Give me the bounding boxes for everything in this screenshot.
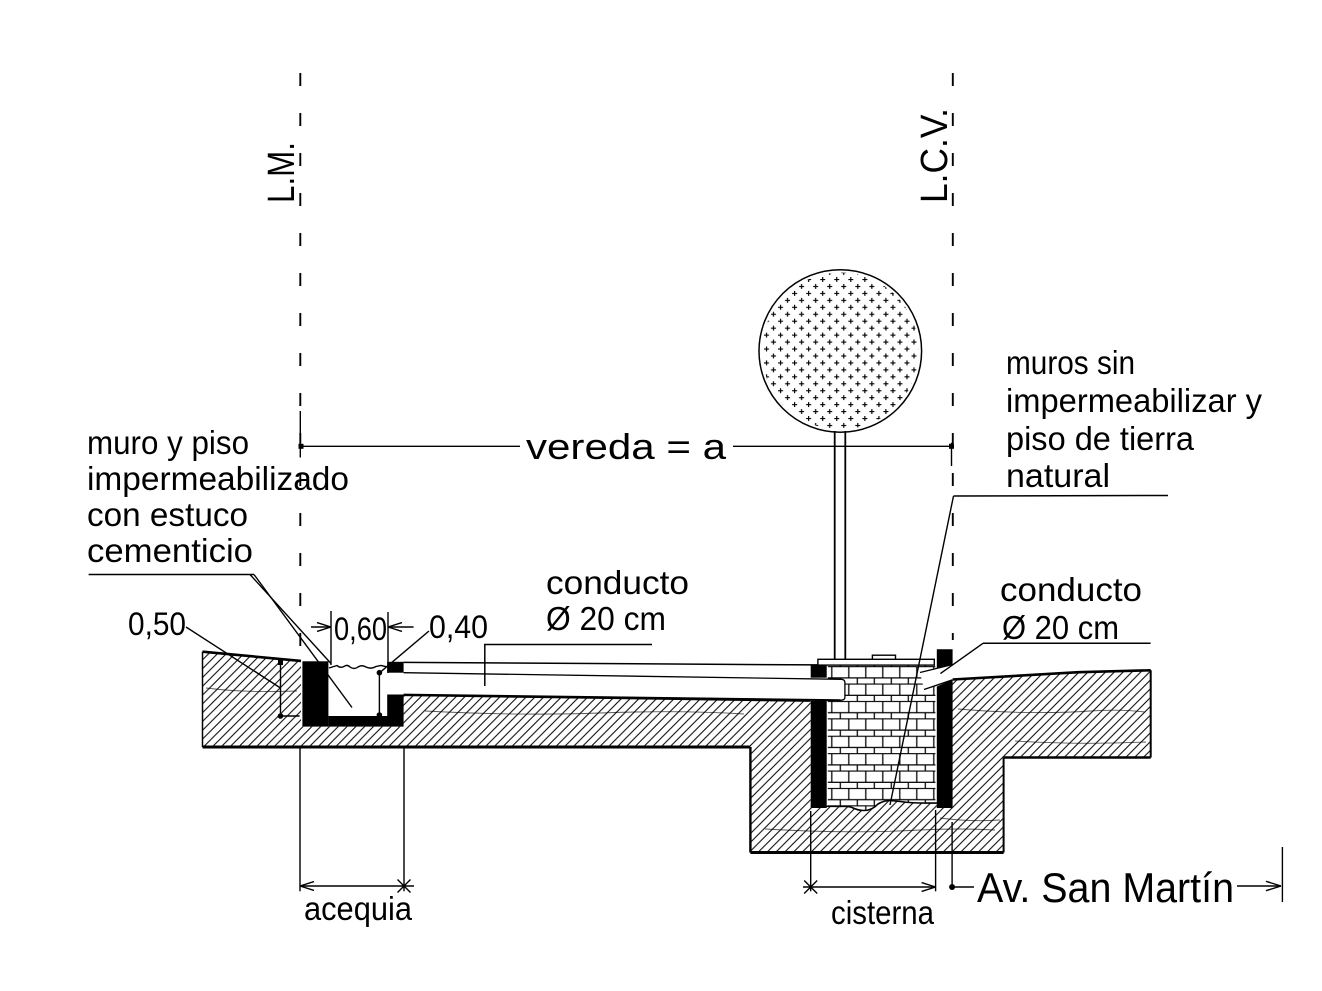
svg-text:0,60: 0,60 xyxy=(334,611,387,647)
svg-text:con estuco: con estuco xyxy=(87,496,248,533)
svg-text:muro y piso: muro y piso xyxy=(87,424,249,461)
svg-text:Ø 20 cm: Ø 20 cm xyxy=(1002,609,1119,646)
svg-text:impermeabilizado: impermeabilizado xyxy=(87,460,349,497)
svg-text:L.M.: L.M. xyxy=(261,142,303,203)
svg-text:Av. San Martín: Av. San Martín xyxy=(977,864,1234,911)
svg-text:natural: natural xyxy=(1006,457,1110,494)
svg-text:0,40: 0,40 xyxy=(429,609,488,645)
svg-text:L.C.V.: L.C.V. xyxy=(914,108,956,203)
svg-text:muros sin: muros sin xyxy=(1006,344,1135,381)
svg-text:cementicio: cementicio xyxy=(87,532,253,569)
svg-text:cisterna: cisterna xyxy=(831,894,935,931)
svg-text:impermeabilizar y: impermeabilizar y xyxy=(1006,382,1262,419)
svg-text:conducto: conducto xyxy=(546,564,689,601)
svg-text:conducto: conducto xyxy=(1000,571,1142,608)
svg-text:Ø 20 cm: Ø 20 cm xyxy=(546,600,666,637)
svg-text:0,50: 0,50 xyxy=(128,606,186,642)
svg-text:vereda = a: vereda = a xyxy=(526,426,727,467)
svg-text:acequia: acequia xyxy=(304,890,413,927)
svg-text:piso de tierra: piso de tierra xyxy=(1006,420,1195,457)
